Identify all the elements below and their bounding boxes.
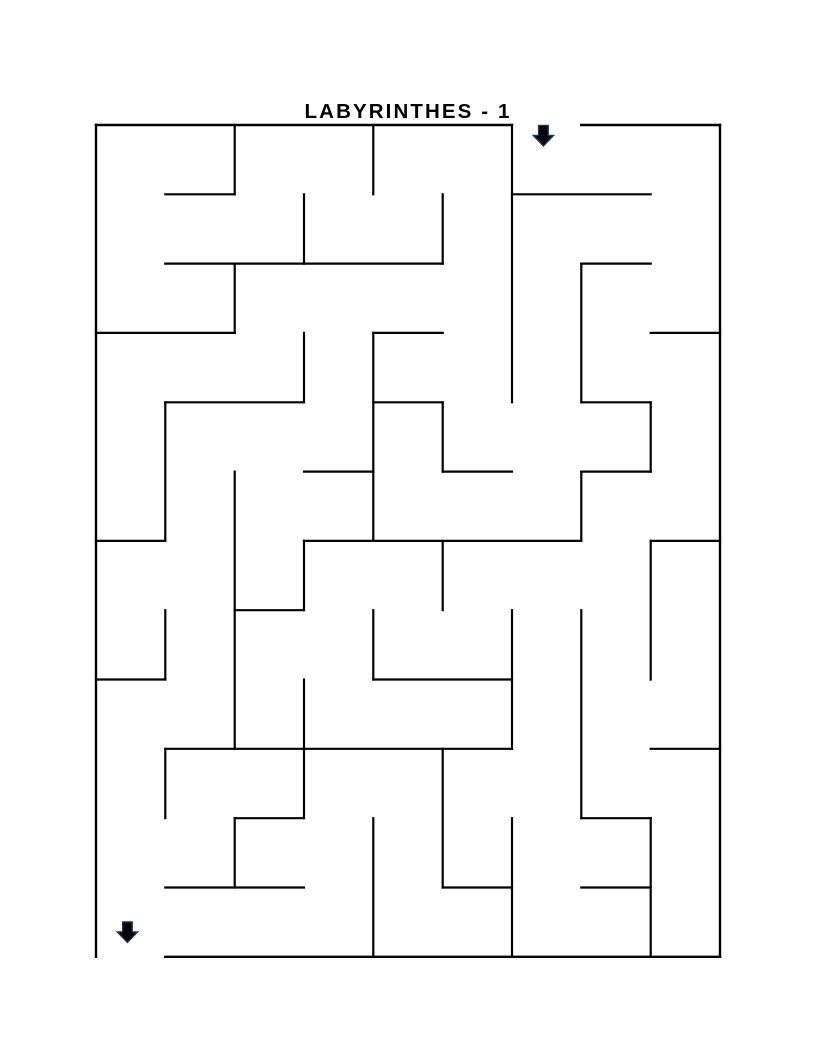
svg-text:LABYRINTHES - 1: LABYRINTHES - 1 (305, 100, 512, 123)
